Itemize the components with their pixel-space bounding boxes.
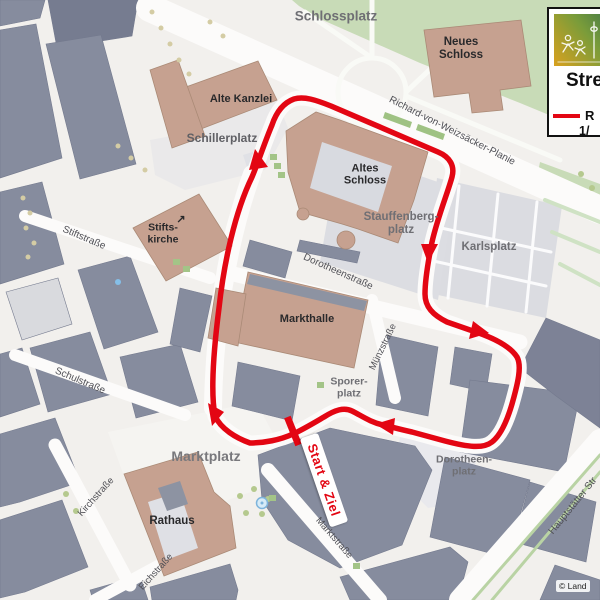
stuttgart-lauf-logo [554,14,600,66]
route-line-swatch [553,114,580,118]
legend-title: Stre [566,70,600,92]
legend-box: Stre R 1/ [547,7,600,137]
legend-route-sublabel: 1/ [579,124,589,138]
fountain-dot [115,279,121,285]
legend-route-item: R [553,108,594,123]
legend-route-label: R [585,108,594,123]
map-copyright: © Land [556,580,590,592]
city-map: Schlossplatz Neues Schloss Alte Kanzlei … [0,0,600,600]
map-canvas [0,0,600,600]
